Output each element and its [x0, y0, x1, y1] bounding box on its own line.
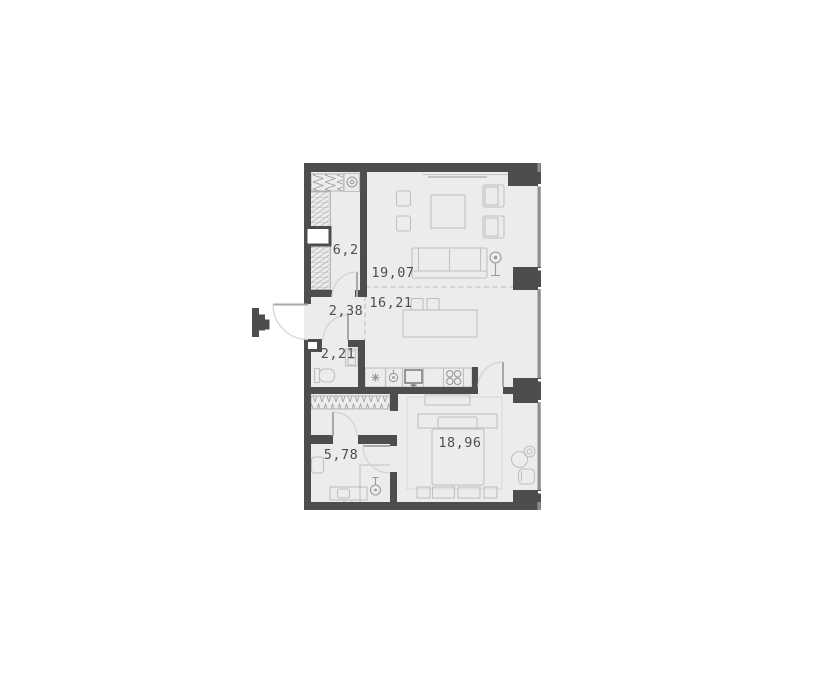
window-glazing-line [538, 163, 541, 510]
floor-plan-page: 6,21 19,07 16,21 2,38 2,21 5,78 18,96 [0, 0, 817, 700]
area-label-hallway: 2,38 [329, 303, 364, 319]
window-pier [513, 490, 541, 502]
entry-arrow-icon [252, 308, 270, 337]
area-label-wc: 2,21 [321, 346, 356, 362]
area-label-kitchen: 16,21 [369, 295, 412, 311]
area-label-bathroom: 5,78 [324, 447, 359, 463]
area-label-dressing-room: 6,21 [333, 242, 368, 258]
floor-plan-drawing: 6,21 19,07 16,21 2,38 2,21 5,78 18,96 [0, 0, 817, 700]
shaft-niche [308, 342, 317, 349]
entry-door [273, 305, 308, 340]
corridor-wardrobe [311, 396, 390, 409]
ventilation-shaft [306, 228, 330, 246]
area-label-living-room: 19,07 [371, 265, 414, 281]
hanging-rail-top [311, 174, 344, 191]
area-label-bedroom: 18,96 [438, 435, 481, 451]
hob-symbol [372, 374, 380, 382]
window-pier [513, 267, 541, 290]
window-pier [513, 378, 541, 403]
